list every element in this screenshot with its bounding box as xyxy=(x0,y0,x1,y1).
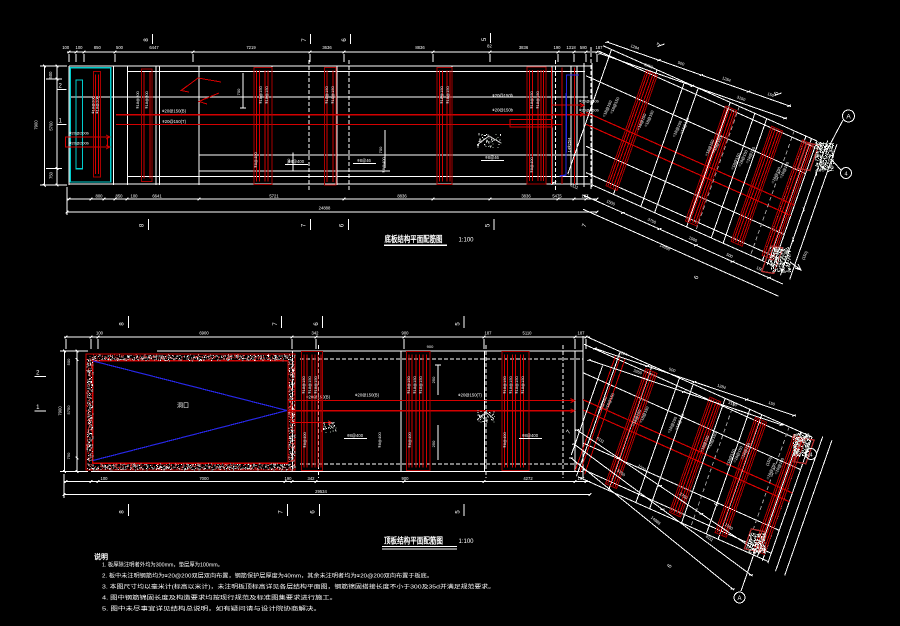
svg-text:⌾8@400: ⌾8@400 xyxy=(302,432,307,448)
svg-text:洞口: 洞口 xyxy=(177,402,189,410)
svg-text:1:100: 1:100 xyxy=(458,539,474,545)
svg-text:29534: 29534 xyxy=(315,489,327,494)
svg-text:100: 100 xyxy=(62,45,70,50)
svg-text:⌾18@150: ⌾18@150 xyxy=(313,375,318,393)
svg-text:342: 342 xyxy=(308,476,316,481)
svg-text:6447: 6447 xyxy=(149,45,159,50)
svg-text:⌾20@150(T): ⌾20@150(T) xyxy=(162,119,186,124)
svg-text:100: 100 xyxy=(96,331,104,336)
svg-text:100: 100 xyxy=(101,476,109,481)
svg-text:700: 700 xyxy=(236,88,241,95)
svg-text:顶板结构平面配筋图: 顶板结构平面配筋图 xyxy=(384,536,443,546)
svg-text:⌾18@150: ⌾18@150 xyxy=(412,375,417,393)
svg-text:187: 187 xyxy=(485,331,493,336)
svg-text:100: 100 xyxy=(131,193,139,198)
svg-text:3836: 3836 xyxy=(519,45,529,50)
svg-text:说明: 说明 xyxy=(94,552,108,561)
svg-text:190: 190 xyxy=(554,45,562,50)
svg-text:850: 850 xyxy=(116,193,124,198)
svg-text:⌾18@150: ⌾18@150 xyxy=(324,85,329,103)
svg-text:⌾8@400: ⌾8@400 xyxy=(407,432,412,448)
svg-text:3836: 3836 xyxy=(521,193,531,198)
svg-text:3636: 3636 xyxy=(322,45,332,50)
svg-text:5110: 5110 xyxy=(522,331,532,336)
svg-text:⌾8@400: ⌾8@400 xyxy=(347,433,364,438)
svg-text:⌾20@150(B): ⌾20@150(B) xyxy=(355,393,380,398)
svg-text:⌾18@150: ⌾18@150 xyxy=(502,375,507,393)
svg-text:900: 900 xyxy=(402,331,410,336)
svg-text:190: 190 xyxy=(285,476,293,481)
svg-text:⌾18@200: ⌾18@200 xyxy=(95,95,100,113)
svg-text:⌾18@150: ⌾18@150 xyxy=(307,375,312,393)
svg-text:5. 图中未尽事宜详见结构总说明，如有疑问请与设计院协商解决: 5. 图中未尽事宜详见结构总说明，如有疑问请与设计院协商解决。 xyxy=(102,605,321,613)
svg-text:⌾18@150: ⌾18@150 xyxy=(535,90,540,108)
svg-text:⌾18@150: ⌾18@150 xyxy=(520,375,525,393)
svg-text:A: A xyxy=(846,114,851,121)
svg-text:8836: 8836 xyxy=(415,45,425,50)
svg-text:900: 900 xyxy=(427,344,434,349)
svg-text:⌾20@150b: ⌾20@150b xyxy=(492,93,513,98)
svg-text:750: 750 xyxy=(66,452,71,459)
svg-text:24888: 24888 xyxy=(319,206,331,211)
svg-text:⌾8@400: ⌾8@400 xyxy=(253,152,258,168)
svg-text:⌾18@150: ⌾18@150 xyxy=(406,375,411,393)
svg-text:⌾20@150(T): ⌾20@150(T) xyxy=(458,393,482,398)
svg-text:250: 250 xyxy=(431,376,436,383)
svg-text:⌾8@400: ⌾8@400 xyxy=(522,433,539,438)
svg-text:7000: 7000 xyxy=(199,476,209,481)
svg-text:⌾18@150: ⌾18@150 xyxy=(418,375,423,393)
svg-text:2. 板中未注明钢筋均为⌾20@200双层双向布置，钢筋保护: 2. 板中未注明钢筋均为⌾20@200双层双向布置，钢筋保护层厚度为40mm，其… xyxy=(102,572,433,580)
svg-text:1318: 1318 xyxy=(566,45,576,50)
svg-text:7900: 7900 xyxy=(34,120,39,130)
svg-text:⌾18@150: ⌾18@150 xyxy=(508,375,513,393)
svg-text:底板结构平面配筋图: 底板结构平面配筋图 xyxy=(385,234,443,244)
svg-text:100: 100 xyxy=(76,45,84,50)
svg-text:6900: 6900 xyxy=(199,331,209,336)
svg-text:5700: 5700 xyxy=(48,121,53,131)
svg-text:⌾20@150(B): ⌾20@150(B) xyxy=(162,109,187,114)
svg-text:4: 4 xyxy=(844,172,847,178)
svg-text:850: 850 xyxy=(94,45,102,50)
svg-text:250: 250 xyxy=(431,440,436,447)
svg-text:⌾8@400: ⌾8@400 xyxy=(502,432,507,448)
svg-text:750: 750 xyxy=(48,171,53,179)
svg-text:580: 580 xyxy=(580,45,588,50)
svg-text:⌾18@150: ⌾18@150 xyxy=(264,85,269,103)
svg-text:⌾8@46: ⌾8@46 xyxy=(485,155,499,160)
svg-text:800: 800 xyxy=(96,193,104,198)
svg-text:5475: 5475 xyxy=(552,193,562,198)
svg-text:8836: 8836 xyxy=(397,193,407,198)
svg-text:⌾18@150: ⌾18@150 xyxy=(301,375,306,393)
svg-text:⌾18@150: ⌾18@150 xyxy=(445,85,450,103)
svg-text:⌾20@150b: ⌾20@150b xyxy=(492,108,513,113)
svg-text:342: 342 xyxy=(312,331,320,336)
svg-text:700: 700 xyxy=(378,146,383,153)
svg-text:4. 图中钢筋锦固长度及构造要求均按现行规范及标准图集要求进: 4. 图中钢筋锦固长度及构造要求均按现行规范及标准图集要求进行施工。 xyxy=(102,594,337,602)
svg-text:⌾18@150: ⌾18@150 xyxy=(529,90,534,108)
svg-text:700: 700 xyxy=(286,158,291,165)
svg-text:7219: 7219 xyxy=(246,45,256,50)
svg-text:⌾8@400: ⌾8@400 xyxy=(377,432,382,448)
svg-text:⌾8@400: ⌾8@400 xyxy=(529,157,534,173)
svg-text:1:100: 1:100 xyxy=(458,238,474,244)
svg-text:⌾18@150: ⌾18@150 xyxy=(258,85,263,103)
svg-text:1. 板厚除注明者外均为300mm，垫层厚为100mm。: 1. 板厚除注明者外均为300mm，垫层厚为100mm。 xyxy=(102,561,223,569)
svg-text:187: 187 xyxy=(578,331,586,336)
svg-text:⌾8@46: ⌾8@46 xyxy=(357,158,371,163)
svg-text:A: A xyxy=(737,596,741,602)
svg-text:3. 本图尺寸均以毫米计(标高以米计)，未注明板顶标高详见各: 3. 本图尺寸均以毫米计(标高以米计)，未注明板顶标高详见各层结构平面图，钢筋锦… xyxy=(102,583,495,591)
svg-text:⌾18@150: ⌾18@150 xyxy=(330,85,335,103)
svg-text:82: 82 xyxy=(487,44,492,49)
svg-text:⌾20@200b: ⌾20@200b xyxy=(69,141,90,146)
svg-text:5721: 5721 xyxy=(269,193,279,198)
svg-text:⌾18@200: ⌾18@200 xyxy=(144,90,149,108)
svg-text:7900: 7900 xyxy=(58,406,63,416)
svg-text:5750: 5750 xyxy=(66,405,71,415)
svg-text:187: 187 xyxy=(596,45,604,50)
svg-text:500: 500 xyxy=(116,45,124,50)
svg-text:⌾18@200: ⌾18@200 xyxy=(135,90,140,108)
svg-text:500: 500 xyxy=(48,71,53,79)
svg-text:500: 500 xyxy=(66,358,71,365)
svg-text:14⌾25/4: 14⌾25/4 xyxy=(567,137,572,152)
svg-text:6641: 6641 xyxy=(152,193,162,198)
svg-text:4272: 4272 xyxy=(523,476,533,481)
svg-text:⌾20@150b: ⌾20@150b xyxy=(579,99,600,104)
svg-text:⌾18@150: ⌾18@150 xyxy=(514,375,519,393)
svg-text:⌾18@150: ⌾18@150 xyxy=(439,85,444,103)
svg-text:4: 4 xyxy=(809,453,812,459)
svg-text:900: 900 xyxy=(402,476,410,481)
svg-text:⌾20@200b: ⌾20@200b xyxy=(69,131,90,136)
